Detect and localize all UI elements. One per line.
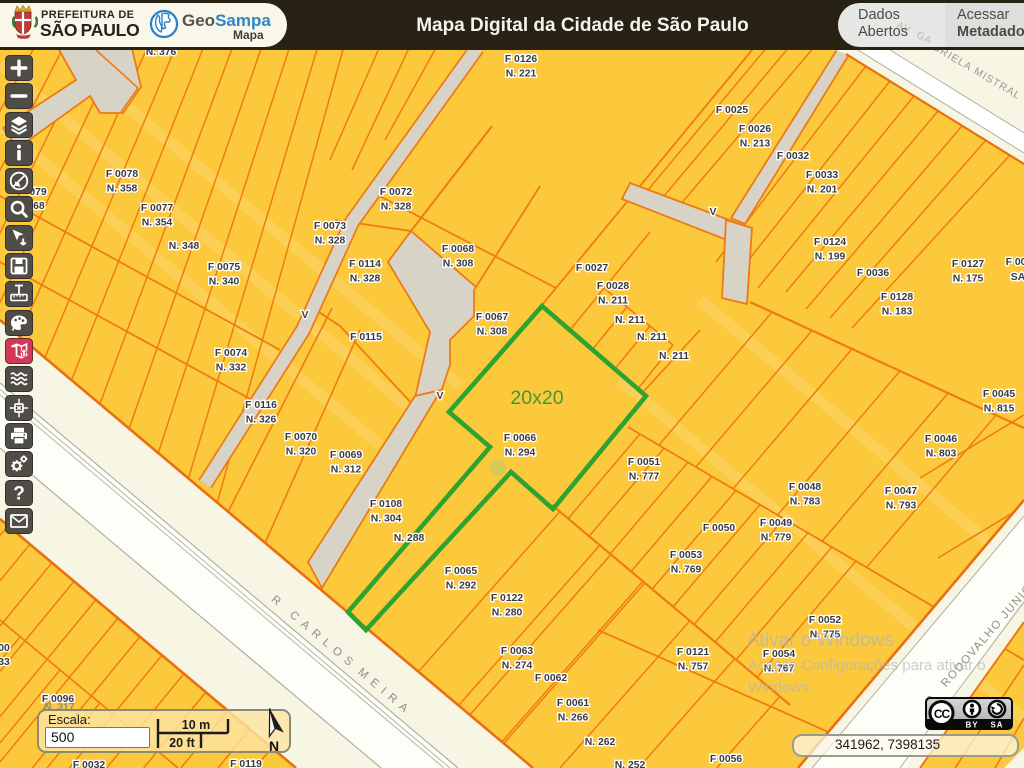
svg-text:F 0032: F 0032	[73, 760, 106, 768]
svg-text:F 0050: F 0050	[703, 523, 736, 534]
svg-text:F 0072: F 0072	[380, 187, 413, 198]
svg-text:N. 328: N. 328	[315, 235, 346, 246]
svg-text:CC: CC	[934, 707, 951, 721]
svg-text:?: ?	[13, 484, 25, 505]
svg-text:F 0124: F 0124	[814, 237, 847, 248]
svg-text:SA: SA	[990, 721, 1003, 730]
svg-text:F 0062: F 0062	[535, 673, 568, 684]
svg-text:F 0063: F 0063	[501, 646, 534, 657]
svg-text:N. 777: N. 777	[629, 471, 660, 482]
svg-text:N. 783: N. 783	[790, 496, 821, 507]
svg-text:N. 328: N. 328	[381, 201, 412, 212]
svg-text:N. 280: N. 280	[492, 607, 523, 618]
svg-text:F 0032: F 0032	[777, 151, 810, 162]
svg-text:F 0033: F 0033	[806, 170, 839, 181]
svg-text:F 0045: F 0045	[983, 389, 1016, 400]
svg-text:N. 757: N. 757	[678, 661, 709, 672]
svg-text:N. 304: N. 304	[371, 513, 402, 524]
svg-text:N. 328: N. 328	[350, 273, 381, 284]
svg-text:N. 262: N. 262	[585, 737, 616, 748]
svg-text:F 0075: F 0075	[208, 262, 241, 273]
svg-text:10 m: 10 m	[182, 718, 211, 732]
svg-text:20x20: 20x20	[510, 387, 563, 409]
svg-text:F 0116: F 0116	[245, 400, 277, 411]
svg-text:F 0025: F 0025	[716, 105, 749, 116]
svg-text:F 0115: F 0115	[350, 332, 382, 343]
svg-text:N. 292: N. 292	[446, 580, 477, 591]
svg-text:N. 769: N. 769	[671, 564, 702, 575]
svg-text:F 0122: F 0122	[491, 593, 524, 604]
svg-text:N. 175: N. 175	[953, 273, 984, 284]
svg-text:F 0114: F 0114	[349, 259, 381, 270]
svg-text:N. 288: N. 288	[394, 533, 425, 544]
svg-text:N. 199: N. 199	[815, 251, 846, 262]
svg-text:N. 211: N. 211	[637, 332, 667, 343]
svg-text:N. 308: N. 308	[477, 326, 508, 337]
svg-text:N. 348: N. 348	[169, 241, 200, 252]
svg-text:F 0119: F 0119	[230, 759, 262, 768]
svg-text:N. 266: N. 266	[558, 712, 589, 723]
svg-text:F 0077: F 0077	[141, 203, 174, 214]
svg-text:V: V	[302, 310, 309, 321]
svg-text:F 0127: F 0127	[952, 259, 985, 270]
svg-text:N. 221: N. 221	[506, 68, 537, 79]
svg-text:F 0066: F 0066	[504, 433, 537, 444]
svg-text:F 0028: F 0028	[597, 281, 630, 292]
svg-text:N. 252: N. 252	[615, 760, 646, 768]
svg-text:BY: BY	[965, 721, 978, 730]
svg-text:F 0051: F 0051	[628, 457, 661, 468]
svg-text:F 0052: F 0052	[809, 615, 842, 626]
svg-text:SA: SA	[1011, 272, 1024, 283]
svg-text:N. 793: N. 793	[886, 500, 917, 511]
svg-text:F 0070: F 0070	[285, 432, 318, 443]
svg-text:N. 332: N. 332	[216, 362, 247, 373]
svg-text:F 0069: F 0069	[330, 450, 363, 461]
svg-text:F 0027: F 0027	[576, 263, 609, 274]
svg-text:F 0049: F 0049	[760, 518, 793, 529]
svg-text:00: 00	[0, 643, 10, 654]
svg-text:N. 354: N. 354	[142, 217, 173, 228]
svg-text:N: N	[269, 738, 279, 754]
svg-text:N. 211: N. 211	[659, 351, 689, 362]
svg-text:N. 211: N. 211	[615, 315, 645, 326]
svg-text:N. 213: N. 213	[740, 138, 771, 149]
svg-text:N. 320: N. 320	[286, 446, 317, 457]
svg-text:N. 312: N. 312	[331, 464, 362, 475]
svg-text:N. 815: N. 815	[984, 403, 1015, 414]
svg-text:F 0067: F 0067	[476, 312, 509, 323]
svg-text:F 0056: F 0056	[710, 754, 743, 765]
svg-text:F 0053: F 0053	[670, 550, 703, 561]
svg-text:N. 308: N. 308	[443, 258, 474, 269]
svg-text:F 0108: F 0108	[370, 499, 403, 510]
svg-text:N. 294: N. 294	[505, 447, 536, 458]
svg-text:F 0046: F 0046	[925, 434, 958, 445]
svg-text:N. 211: N. 211	[598, 295, 628, 306]
svg-text:F 0048: F 0048	[789, 482, 822, 493]
svg-text:F 0068: F 0068	[442, 244, 475, 255]
svg-text:N. 779: N. 779	[761, 532, 792, 543]
svg-text:N. 340: N. 340	[209, 276, 240, 287]
svg-text:33: 33	[0, 657, 10, 668]
svg-text:F 0078: F 0078	[106, 169, 139, 180]
svg-text:F 0126: F 0126	[505, 54, 538, 65]
svg-text:N. 274: N. 274	[502, 660, 533, 671]
svg-text:N. 326: N. 326	[246, 414, 277, 425]
svg-text:20 ft: 20 ft	[169, 736, 196, 750]
svg-text:F 0128: F 0128	[881, 292, 914, 303]
svg-text:F 0036: F 0036	[857, 268, 890, 279]
svg-text:F 0065: F 0065	[445, 566, 478, 577]
svg-text:F 0074: F 0074	[215, 348, 248, 359]
svg-text:F 0026: F 0026	[739, 124, 772, 135]
svg-text:N. 358: N. 358	[107, 183, 138, 194]
svg-text:F 00: F 00	[1006, 257, 1024, 268]
svg-text:N. 201: N. 201	[807, 184, 838, 195]
svg-text:N. 183: N. 183	[882, 306, 913, 317]
svg-text:F 0121: F 0121	[677, 647, 710, 658]
svg-text:N. 803: N. 803	[926, 448, 957, 459]
svg-text:F 0061: F 0061	[557, 698, 590, 709]
svg-text:F 0073: F 0073	[314, 221, 347, 232]
svg-text:V: V	[710, 207, 717, 218]
svg-text:F 0047: F 0047	[885, 486, 918, 497]
svg-text:V: V	[437, 391, 444, 402]
